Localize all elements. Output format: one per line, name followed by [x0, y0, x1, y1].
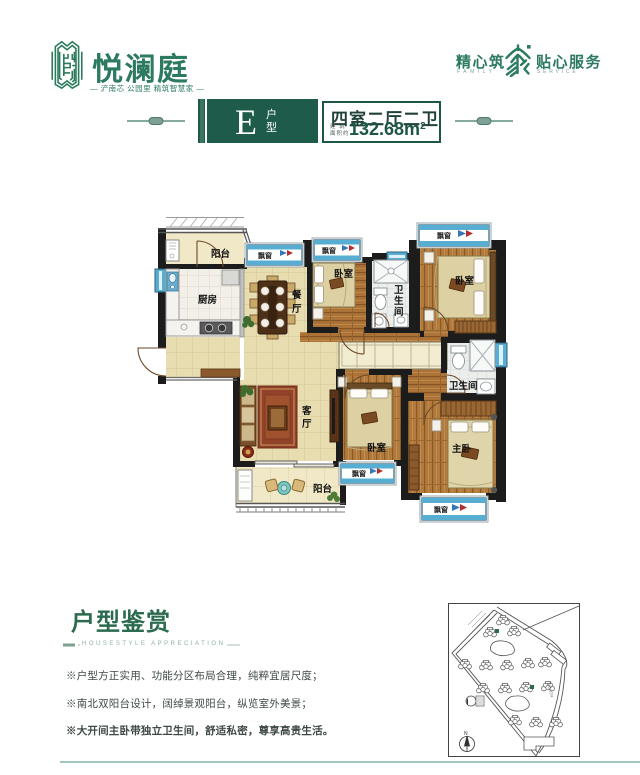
- svg-text:N: N: [464, 731, 468, 737]
